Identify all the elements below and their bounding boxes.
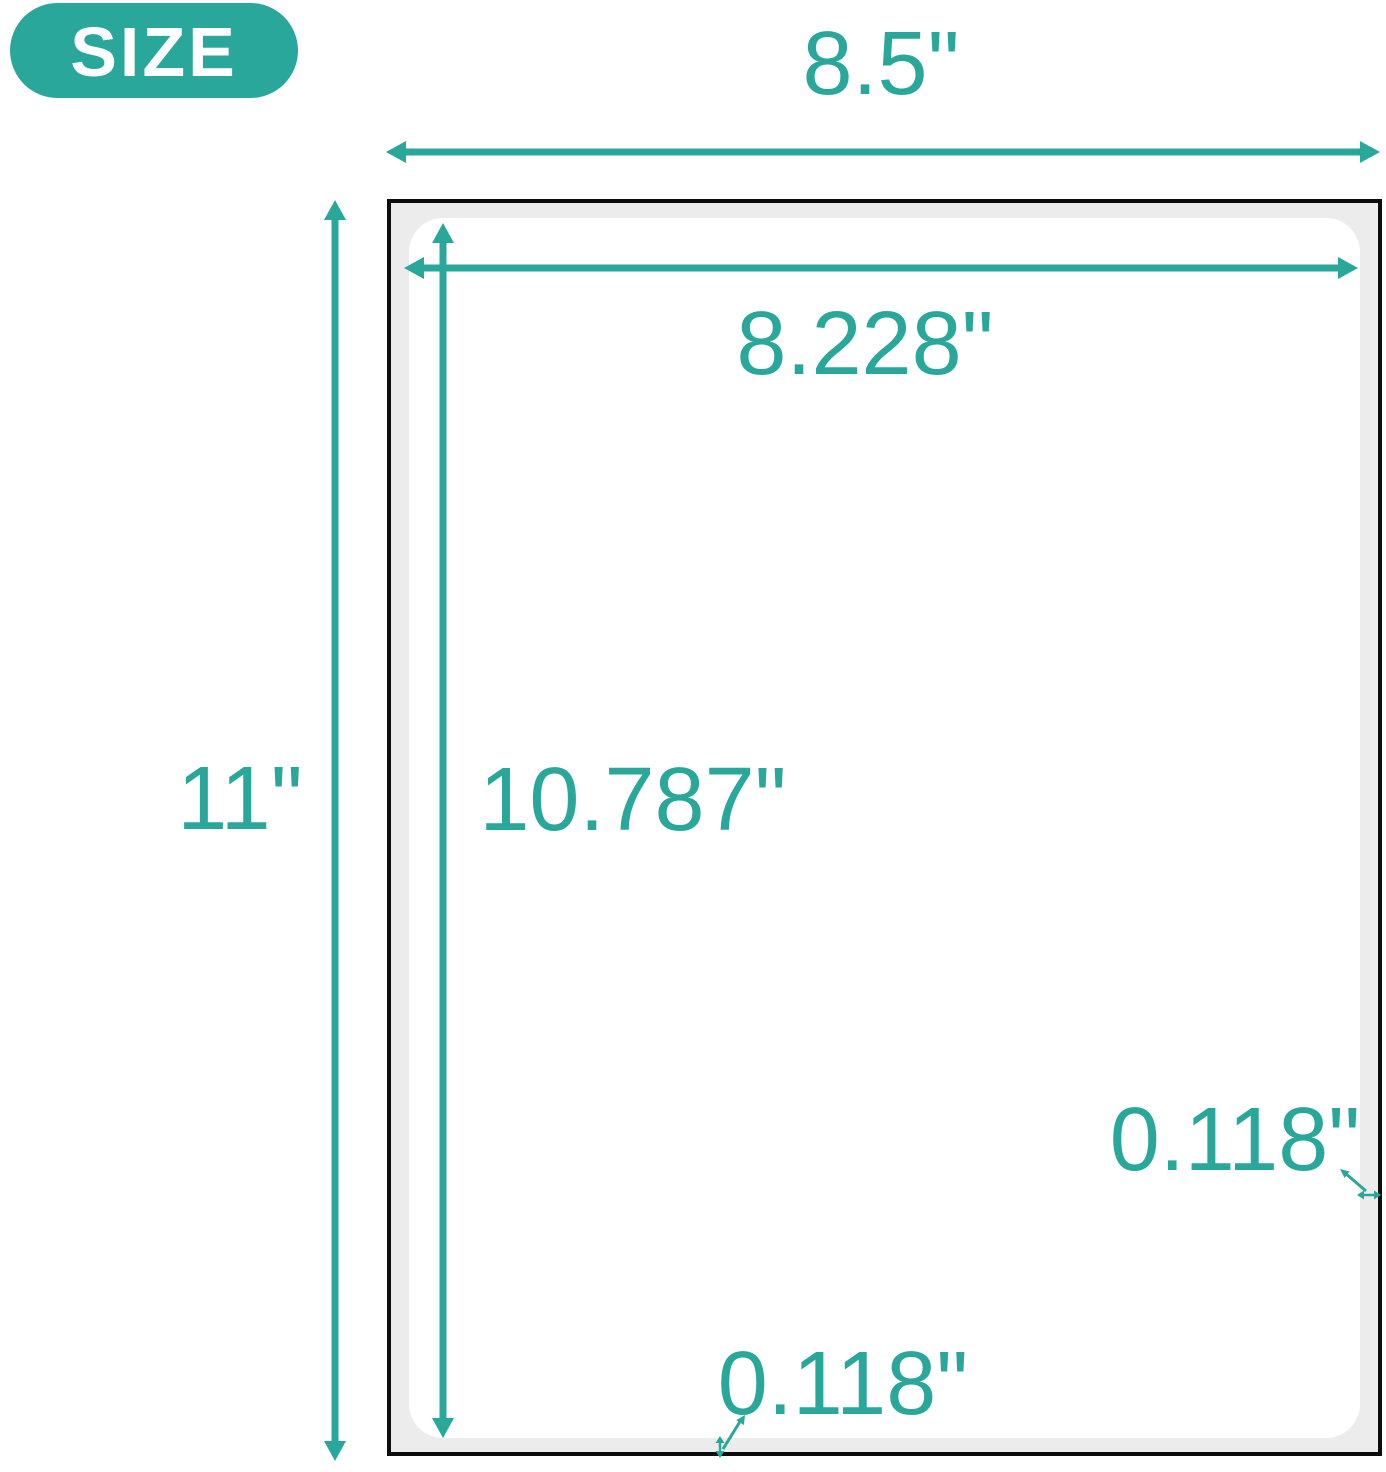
size-badge-label: SIZE — [70, 15, 238, 87]
label-width-label: 8.228" — [736, 299, 993, 389]
size-badge: SIZE — [10, 3, 298, 98]
bottom-margin-annotation — [705, 1405, 765, 1465]
size-diagram: SIZE 8.5" 11" 8.228" 10.787" 0.118" — [0, 0, 1386, 1472]
label-height-label: 10.787" — [479, 755, 786, 845]
sheet-height-arrow — [321, 200, 349, 1461]
sheet-width-label: 8.5" — [802, 19, 959, 109]
label-width-arrow — [404, 254, 1358, 282]
right-margin-label: 0.118" — [1110, 1095, 1361, 1185]
right-margin-annotation — [1335, 1160, 1386, 1206]
sheet-height-label: 11" — [177, 754, 302, 844]
label-height-arrow — [429, 223, 457, 1438]
sheet-width-arrow — [386, 138, 1380, 166]
